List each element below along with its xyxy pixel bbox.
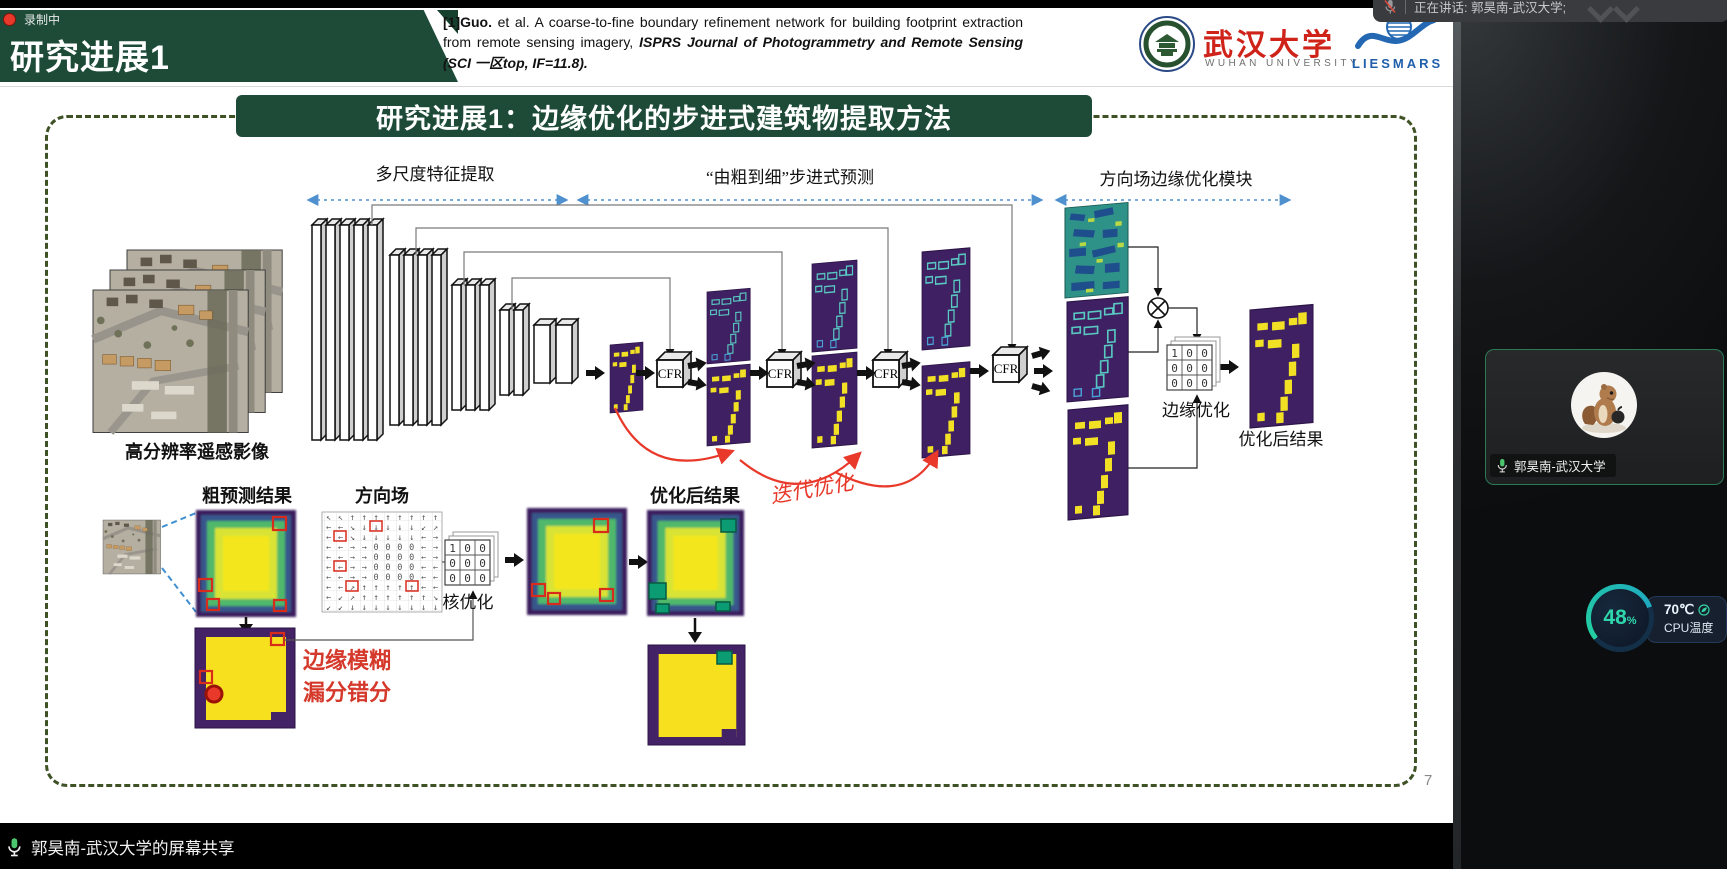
edge-kernel-stack: 1 0 0 0 0 0 0 0 0 xyxy=(1167,337,1220,390)
input-label: 高分辨率遥感影像 xyxy=(125,441,270,462)
kernel-cell: 0 xyxy=(464,572,471,585)
cpu-monitor-widget[interactable]: 70℃ CPU温度 48 % xyxy=(1586,584,1727,654)
cfr-label: CFR xyxy=(658,366,683,381)
edge-opt-label: 边缘优化 xyxy=(1162,401,1230,420)
kernel-cell: 0 xyxy=(1186,377,1193,390)
kernel-cell: 0 xyxy=(464,542,471,555)
sidebar-scrollbar[interactable] xyxy=(1453,0,1461,869)
slide-title: 研究进展1：边缘优化的步进式建筑物提取方法 xyxy=(376,97,952,136)
dirfield-label: 方向场 xyxy=(355,485,409,506)
speaking-banner-text: 正在讲话: 郭昊南-武汉大学; xyxy=(1414,0,1566,16)
section-label-dirfield: 方向场边缘优化模块 xyxy=(1100,170,1253,189)
slide-title-banner: 研究进展1：边缘优化的步进式建筑物提取方法 xyxy=(236,95,1092,137)
page-title: 研究进展1 xyxy=(10,30,170,79)
kernel-cell: 0 xyxy=(1201,362,1208,375)
bottom-kernel-stack: 1 0 0 0 0 0 0 0 0 xyxy=(445,532,498,585)
meeting-window: 录制中 研究进展1 [1]Guo. et al. A coarse-to-fin… xyxy=(0,0,1727,869)
cpu-usage-gauge: 48 % xyxy=(1586,584,1654,652)
participant-name: 郭昊南-武汉大学 xyxy=(1514,456,1606,475)
cpu-temp-label: CPU温度 xyxy=(1664,619,1726,636)
cpu-temp-box: 70℃ CPU温度 xyxy=(1646,596,1727,643)
kernel-cell: 1 xyxy=(1171,347,1178,360)
refined-right-label: 优化后结果 xyxy=(1239,430,1324,449)
screen-share-banner: 郭昊南-武汉大学的屏幕共享 xyxy=(0,824,1453,869)
problem-line1: 边缘模糊 xyxy=(302,648,391,673)
cfr-label: CFR xyxy=(994,361,1019,376)
cfr-label: CFR xyxy=(874,366,899,381)
recording-label: 录制中 xyxy=(24,11,60,28)
edge-module: 1 0 0 0 0 0 0 0 0 边缘优化 优化后结果 xyxy=(1065,202,1324,520)
participant-name-badge: 郭昊南-武汉大学 xyxy=(1490,454,1616,477)
coarse-mask xyxy=(195,628,295,728)
kernel-cell: 0 xyxy=(449,557,456,570)
cpu-percent: 48 xyxy=(1603,607,1626,628)
recording-dot-icon xyxy=(3,13,16,26)
kernel-cell: 0 xyxy=(479,542,486,555)
kernel-cell: 0 xyxy=(449,572,456,585)
kernel-cell: 0 xyxy=(1171,362,1178,375)
zoom-lines xyxy=(162,513,196,612)
iterative-arcs xyxy=(615,408,936,486)
kernel-cell: 0 xyxy=(1186,362,1193,375)
kernel-opt-label: 核优化 xyxy=(443,593,494,612)
coarse-label: 粗预测结果 xyxy=(202,485,293,506)
bottom-row: 粗预测结果 边缘模糊 漏分错分 xyxy=(103,485,745,745)
kernel-cell: 0 xyxy=(479,572,486,585)
leaf-icon xyxy=(1698,604,1710,616)
microphone-muted-icon xyxy=(1383,0,1397,15)
kernel-cell: 1 xyxy=(449,542,456,555)
kernel-cell: 0 xyxy=(1186,347,1193,360)
kernel-cell: 0 xyxy=(464,557,471,570)
cpu-percent-unit: % xyxy=(1627,615,1637,627)
input-image-stack xyxy=(93,250,282,433)
problem-line2: 漏分错分 xyxy=(303,680,391,705)
zoom-patch xyxy=(103,520,161,574)
cpu-temp-value: 70℃ xyxy=(1664,602,1694,618)
section-label-multiscale: 多尺度特征提取 xyxy=(376,165,495,184)
divider xyxy=(1405,0,1406,14)
page-number: 7 xyxy=(1424,772,1432,789)
shared-screen: 录制中 研究进展1 [1]Guo. et al. A coarse-to-fin… xyxy=(0,0,1453,869)
section-label-coarse2fine: “由粗到细”步进式预测 xyxy=(706,168,874,187)
kernel-cell: 0 xyxy=(1201,347,1208,360)
section-headers: 多尺度特征提取 “由粗到细”步进式预测 方向场边缘优化模块 xyxy=(310,165,1288,200)
kernel-cell: 0 xyxy=(1171,377,1178,390)
cfr-label: CFR xyxy=(768,366,793,381)
chipmunk-avatar-icon xyxy=(1571,372,1637,438)
participant-video-tile[interactable]: 郭昊南-武汉大学 xyxy=(1485,349,1724,485)
refined-bottom-label: 优化后结果 xyxy=(650,485,741,506)
microphone-active-icon xyxy=(1496,458,1508,473)
share-banner-text: 郭昊南-武汉大学的屏幕共享 xyxy=(31,835,235,859)
recording-indicator: 录制中 xyxy=(3,11,60,28)
direction-grid: ↖↖↑↑↑↑↑↑↑↑ ←←↘↓↓↓↓↓↙↗ ←←↘↓↓↓↓↓←→ ←←→→000… xyxy=(322,512,442,613)
kernel-cell: 0 xyxy=(1201,377,1208,390)
speaking-indicator-bar: 正在讲话: 郭昊南-武汉大学; xyxy=(1373,0,1727,22)
kernel-cell: 0 xyxy=(479,557,486,570)
iterative-label: 迭代优化 xyxy=(768,469,858,508)
microphone-icon xyxy=(6,837,22,857)
avatar xyxy=(1571,372,1637,438)
